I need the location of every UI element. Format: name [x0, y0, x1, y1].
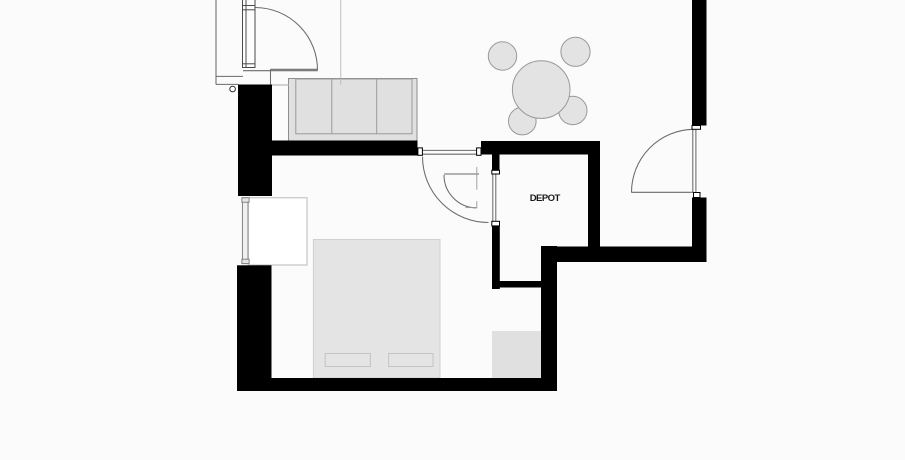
svg-text:DEPOT: DEPOT	[530, 193, 561, 204]
